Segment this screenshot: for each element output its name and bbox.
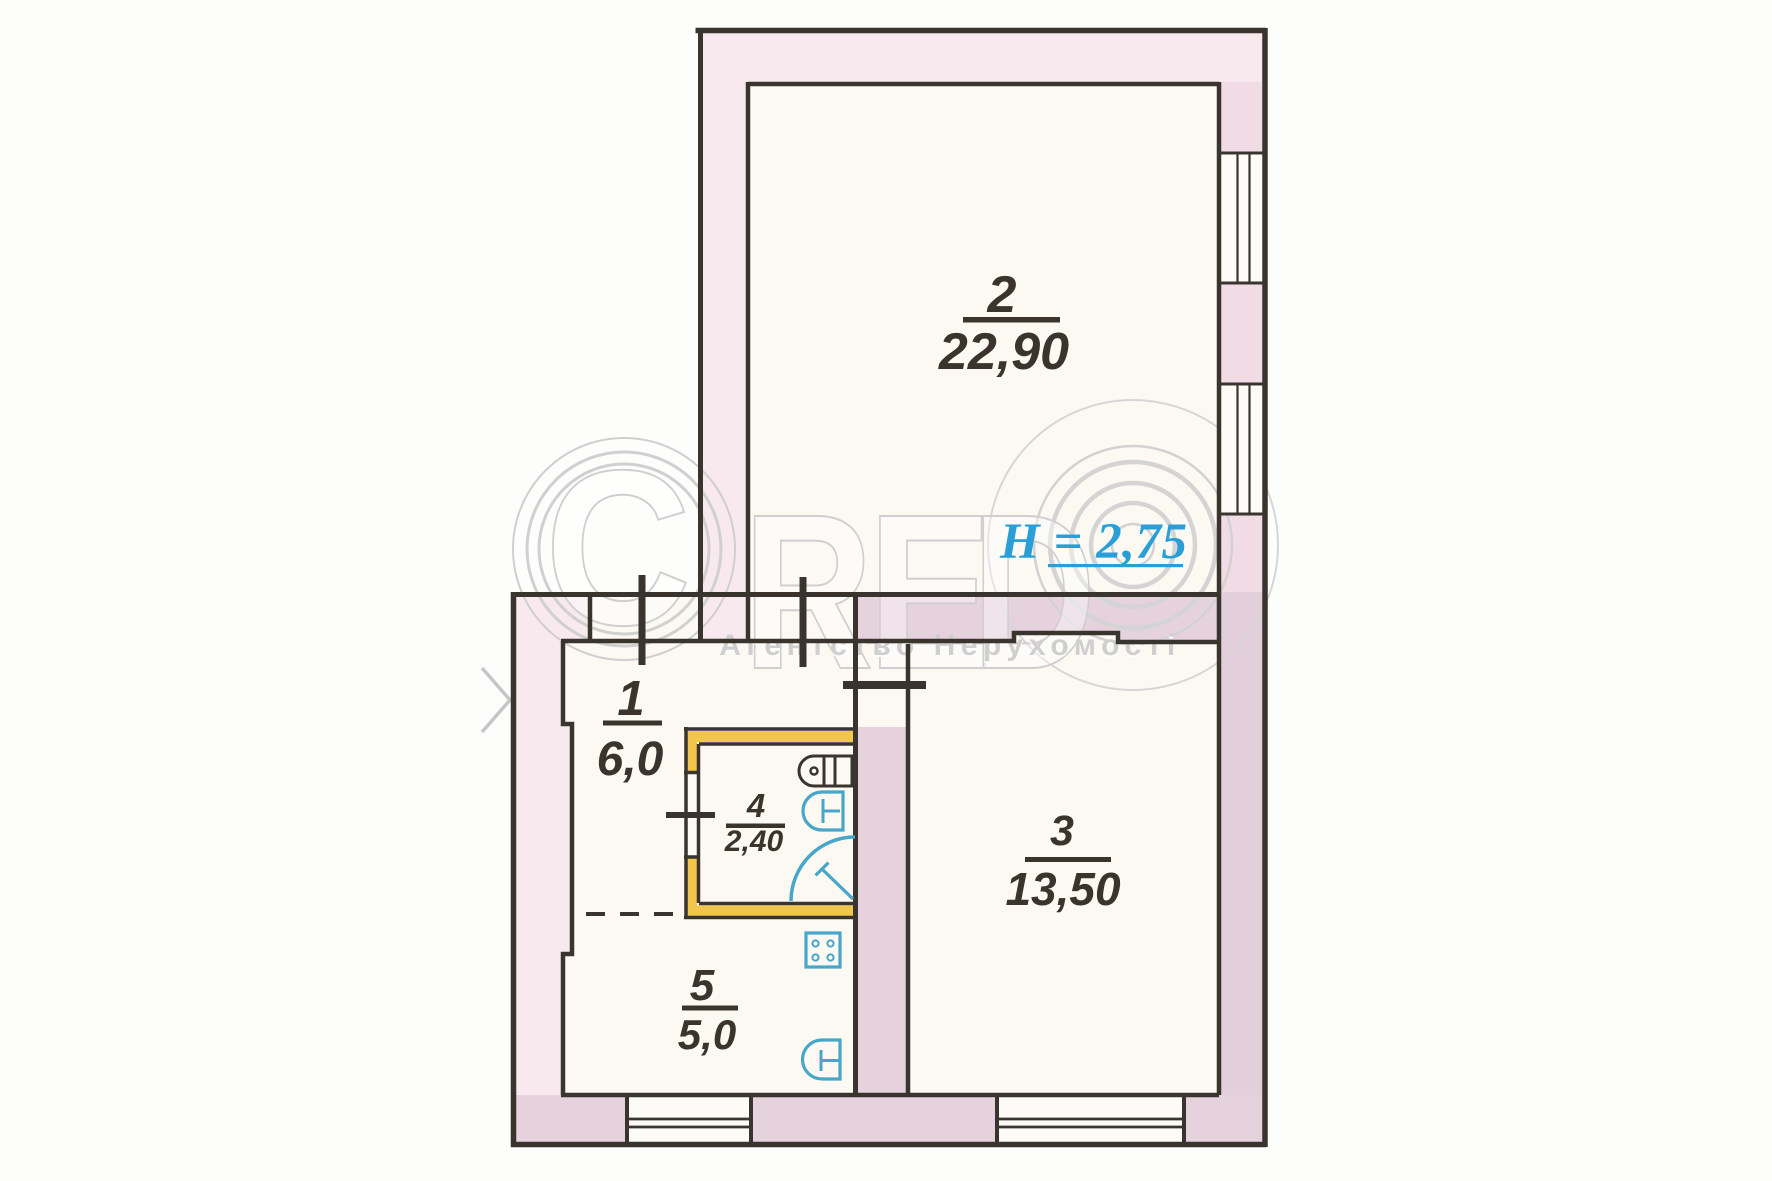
svg-text:5,0: 5,0 (678, 1011, 736, 1058)
svg-text:3: 3 (1050, 807, 1074, 855)
svg-text:D: D (972, 468, 1096, 714)
svg-text:13,50: 13,50 (1005, 863, 1121, 915)
svg-text:1: 1 (617, 672, 644, 726)
svg-text:6,0: 6,0 (597, 733, 664, 786)
svg-text:22,90: 22,90 (938, 323, 1069, 381)
svg-text:H = 2,75: H = 2,75 (999, 514, 1187, 570)
svg-text:2: 2 (987, 266, 1017, 324)
svg-text:2,40: 2,40 (724, 825, 784, 858)
svg-text:4: 4 (746, 787, 765, 824)
svg-text:5: 5 (690, 961, 715, 1010)
svg-text:C: C (545, 424, 692, 671)
